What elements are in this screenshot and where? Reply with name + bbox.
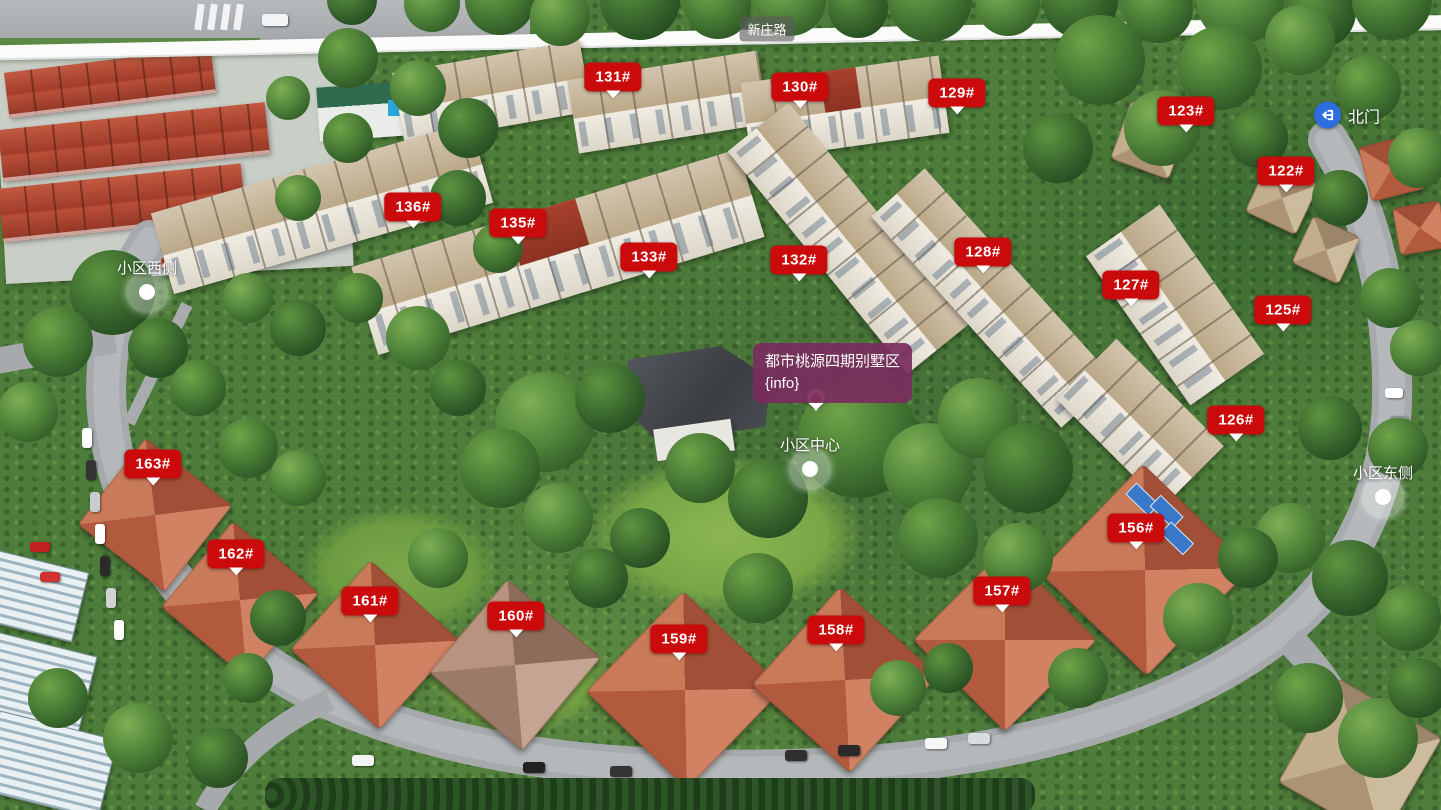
tree xyxy=(723,553,793,623)
marker-pointer-icon xyxy=(642,271,656,279)
building-label-marker[interactable]: 130# xyxy=(771,73,828,102)
parked-car xyxy=(100,556,110,576)
panorama-hotspot[interactable]: 小区西侧 xyxy=(126,271,168,313)
gate-marker-north[interactable]: 北门 xyxy=(1314,102,1380,129)
community-info-tooltip[interactable]: 都市桃源四期别墅区 {info} xyxy=(753,343,912,403)
tree xyxy=(218,418,278,478)
tree xyxy=(438,98,498,158)
building-number-badge: 132# xyxy=(770,246,827,275)
building-number-badge: 130# xyxy=(771,73,828,102)
building-label-marker[interactable]: 160# xyxy=(487,602,544,631)
building-label-marker[interactable]: 131# xyxy=(584,63,641,92)
hotspot-dot xyxy=(139,284,155,300)
marker-pointer-icon xyxy=(606,91,620,99)
building-number-badge: 135# xyxy=(489,209,546,238)
panorama-hotspot[interactable]: 小区中心 xyxy=(789,448,831,490)
building-label-marker[interactable]: 162# xyxy=(207,540,264,569)
tree xyxy=(870,660,926,716)
tree xyxy=(28,668,88,728)
tree xyxy=(523,483,593,553)
aerial-panorama-view: 新庄路 北门 小区西侧小区中心小区东侧 131#130#129#123#122#… xyxy=(0,0,1441,810)
parked-car xyxy=(1385,388,1403,398)
marker-pointer-icon xyxy=(793,101,807,109)
building-label-marker[interactable]: 125# xyxy=(1254,296,1311,325)
hotspot-dot xyxy=(1375,489,1391,505)
hotspot-label: 小区东侧 xyxy=(1353,462,1413,483)
tree xyxy=(270,300,326,356)
tree xyxy=(1390,320,1441,376)
tree xyxy=(23,307,93,377)
road-name-label: 新庄路 xyxy=(739,17,794,42)
building-label-marker[interactable]: 126# xyxy=(1207,406,1264,435)
marker-pointer-icon xyxy=(976,266,990,274)
parked-car xyxy=(82,428,92,448)
villa-roof xyxy=(1392,200,1441,256)
parked-car xyxy=(95,524,105,544)
tree xyxy=(923,643,973,693)
tree xyxy=(1163,583,1233,653)
building-number-badge: 161# xyxy=(341,587,398,616)
parked-car xyxy=(86,460,96,480)
tree xyxy=(170,360,226,416)
parked-car xyxy=(925,738,947,749)
building-number-badge: 123# xyxy=(1157,97,1214,126)
building-number-badge: 131# xyxy=(584,63,641,92)
hedge-row xyxy=(265,778,1035,810)
building-label-marker[interactable]: 156# xyxy=(1107,514,1164,543)
building-label-marker[interactable]: 128# xyxy=(954,238,1011,267)
tree xyxy=(665,433,735,503)
tree xyxy=(386,306,450,370)
tooltip-info-placeholder: {info} xyxy=(765,373,900,395)
building-number-badge: 159# xyxy=(650,625,707,654)
gate-label: 北门 xyxy=(1348,103,1380,127)
marker-pointer-icon xyxy=(672,653,686,661)
parked-car xyxy=(90,492,100,512)
tooltip-title: 都市桃源四期别墅区 xyxy=(765,351,900,373)
tree xyxy=(575,363,645,433)
building-number-badge: 122# xyxy=(1257,157,1314,186)
tree xyxy=(1023,113,1093,183)
building-label-marker[interactable]: 122# xyxy=(1257,157,1314,186)
building-number-badge: 128# xyxy=(954,238,1011,267)
parked-car xyxy=(523,762,545,773)
marker-pointer-icon xyxy=(1276,324,1290,332)
building-label-marker[interactable]: 158# xyxy=(807,616,864,645)
building-number-badge: 126# xyxy=(1207,406,1264,435)
marker-pointer-icon xyxy=(950,107,964,115)
building-number-badge: 157# xyxy=(973,577,1030,606)
building-label-marker[interactable]: 129# xyxy=(928,79,985,108)
parked-car xyxy=(968,733,990,744)
building-number-badge: 160# xyxy=(487,602,544,631)
tree xyxy=(898,498,978,578)
building-label-marker[interactable]: 159# xyxy=(650,625,707,654)
tree xyxy=(0,382,58,442)
hotspot-label: 小区西侧 xyxy=(117,257,177,278)
tree xyxy=(323,113,373,163)
marker-pointer-icon xyxy=(1229,434,1243,442)
tree xyxy=(1312,170,1368,226)
parked-car xyxy=(785,750,807,761)
tree xyxy=(1388,658,1441,718)
building-label-marker[interactable]: 161# xyxy=(341,587,398,616)
building-number-badge: 133# xyxy=(620,243,677,272)
marker-pointer-icon xyxy=(363,615,377,623)
tree xyxy=(390,60,446,116)
building-label-marker[interactable]: 127# xyxy=(1102,271,1159,300)
building-number-badge: 127# xyxy=(1102,271,1159,300)
building-number-badge: 156# xyxy=(1107,514,1164,543)
tree xyxy=(1360,268,1420,328)
parked-car xyxy=(352,755,374,766)
tree xyxy=(333,273,383,323)
building-label-marker[interactable]: 163# xyxy=(124,450,181,479)
marker-pointer-icon xyxy=(1124,299,1138,307)
marker-pointer-icon xyxy=(1179,125,1193,133)
tree xyxy=(270,450,326,506)
tree xyxy=(1298,396,1362,460)
tree xyxy=(1265,5,1335,75)
parked-car xyxy=(30,542,50,552)
tree xyxy=(250,590,306,646)
hotspot-label: 小区中心 xyxy=(780,434,840,455)
building-number-badge: 163# xyxy=(124,450,181,479)
tree xyxy=(430,360,486,416)
marker-pointer-icon xyxy=(511,237,525,245)
marker-pointer-icon xyxy=(829,644,843,652)
tree xyxy=(408,528,468,588)
marker-pointer-icon xyxy=(1279,185,1293,193)
building-label-marker[interactable]: 136# xyxy=(384,193,441,222)
building-label-marker[interactable]: 157# xyxy=(973,577,1030,606)
marker-pointer-icon xyxy=(146,478,160,486)
tree xyxy=(1273,663,1343,733)
tree xyxy=(460,428,540,508)
marker-pointer-icon xyxy=(509,630,523,638)
building-number-badge: 162# xyxy=(207,540,264,569)
tree xyxy=(188,728,248,788)
tree xyxy=(103,703,173,773)
building-label-marker[interactable]: 123# xyxy=(1157,97,1214,126)
building-number-badge: 158# xyxy=(807,616,864,645)
parked-car xyxy=(40,572,60,582)
tree xyxy=(1055,15,1145,105)
entry-arrow-icon xyxy=(1314,102,1341,129)
panorama-hotspot[interactable]: 小区东侧 xyxy=(1362,476,1404,518)
building-number-badge: 136# xyxy=(384,193,441,222)
building-number-badge: 125# xyxy=(1254,296,1311,325)
marker-pointer-icon xyxy=(995,605,1009,613)
tree xyxy=(223,653,273,703)
marker-pointer-icon xyxy=(406,221,420,229)
tree xyxy=(1218,528,1278,588)
parked-car xyxy=(114,620,124,640)
parked-car xyxy=(106,588,116,608)
parked-car xyxy=(838,745,860,756)
parked-car xyxy=(262,14,288,26)
tree xyxy=(1375,585,1441,651)
building-label-marker[interactable]: 132# xyxy=(770,246,827,275)
building-number-badge: 129# xyxy=(928,79,985,108)
hotspot-dot xyxy=(802,461,818,477)
tree xyxy=(983,423,1073,513)
pin-tip xyxy=(811,405,821,411)
tree xyxy=(266,76,310,120)
marker-pointer-icon xyxy=(792,274,806,282)
tree xyxy=(1388,128,1441,188)
marker-pointer-icon xyxy=(1129,542,1143,550)
tree xyxy=(223,273,273,323)
building-label-marker[interactable]: 133# xyxy=(620,243,677,272)
building-label-marker[interactable]: 135# xyxy=(489,209,546,238)
solar-panel xyxy=(1160,521,1194,555)
tree xyxy=(568,548,628,608)
tree xyxy=(275,175,321,221)
marker-pointer-icon xyxy=(229,568,243,576)
parked-car xyxy=(610,766,632,777)
tree xyxy=(1048,648,1108,708)
tree xyxy=(318,28,378,88)
